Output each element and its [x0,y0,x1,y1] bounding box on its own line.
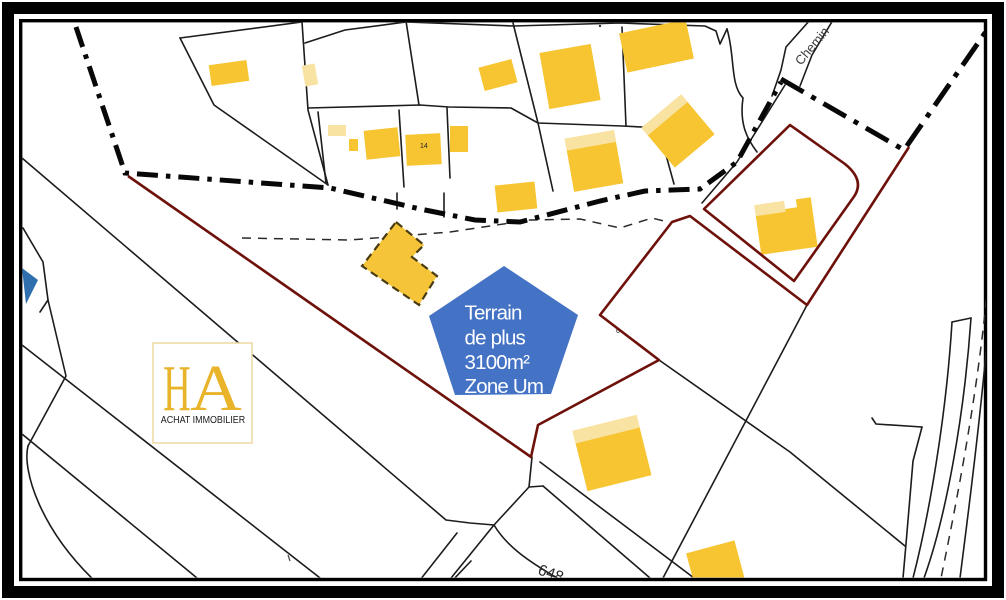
svg-text:14: 14 [420,143,428,150]
svg-text:Zone Um: Zone Um [465,375,544,398]
svg-text:Terrain: Terrain [465,302,522,325]
svg-text:ACHAT IMMOBILIER: ACHAT IMMOBILIER [161,414,245,426]
svg-text:de plus: de plus [465,327,526,350]
svg-text:3100m²: 3100m² [465,351,531,374]
